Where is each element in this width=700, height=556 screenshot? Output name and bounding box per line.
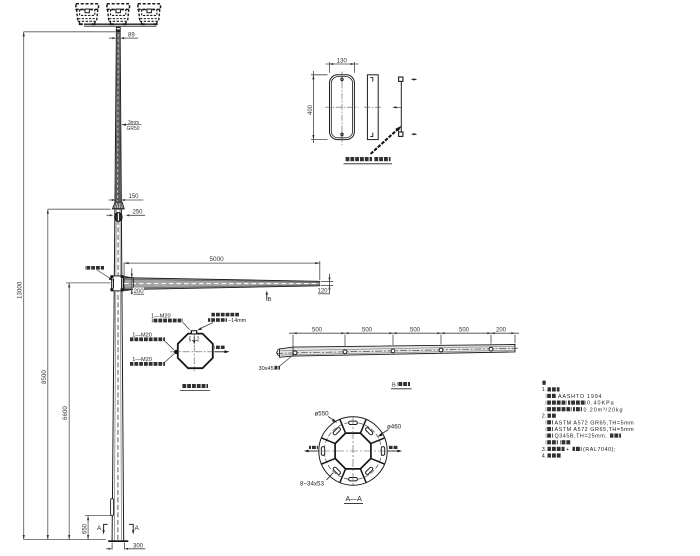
svg-text:130: 130 xyxy=(337,58,348,64)
svg-text:2.: 2. xyxy=(542,414,548,420)
svg-text:300: 300 xyxy=(133,544,144,550)
svg-text:A: A xyxy=(97,525,102,532)
svg-text:30x45: 30x45 xyxy=(259,366,274,372)
svg-text:500: 500 xyxy=(410,327,421,333)
svg-text:6600: 6600 xyxy=(62,406,69,420)
svg-text:AASHTO 1994: AASHTO 1994 xyxy=(558,394,602,400)
svg-text:ø460: ø460 xyxy=(387,424,402,431)
svg-text:+: + xyxy=(566,447,570,453)
svg-text:4.: 4. xyxy=(542,454,548,460)
svg-text:150: 150 xyxy=(129,194,140,200)
svg-text:1.: 1. xyxy=(542,387,548,393)
svg-text:8−34x53: 8−34x53 xyxy=(300,481,324,488)
svg-text:0.40KPa: 0.40KPa xyxy=(587,401,615,407)
svg-text:A: A xyxy=(135,525,140,532)
svg-text:0.20m³/20kg: 0.20m³/20kg xyxy=(584,407,624,413)
svg-text:500: 500 xyxy=(362,327,373,333)
svg-text:B: B xyxy=(392,383,396,389)
svg-text:(RAL7040);: (RAL7040); xyxy=(583,447,616,453)
svg-text:−14mm: −14mm xyxy=(228,318,247,324)
svg-text:ø550: ø550 xyxy=(315,410,330,417)
svg-text:500: 500 xyxy=(459,327,470,333)
svg-text:200: 200 xyxy=(496,327,507,333)
svg-text:89: 89 xyxy=(128,33,135,39)
svg-text:5000: 5000 xyxy=(210,256,225,263)
svg-text:GR50: GR50 xyxy=(127,126,140,132)
svg-text:B: B xyxy=(268,297,272,303)
svg-text:400: 400 xyxy=(308,104,314,115)
svg-text:13000: 13000 xyxy=(17,281,24,299)
svg-text:8500: 8500 xyxy=(41,370,48,384)
svg-text:500: 500 xyxy=(312,327,323,333)
svg-text:650: 650 xyxy=(82,523,88,534)
svg-text:120: 120 xyxy=(318,288,329,294)
svg-text:A—A: A—A xyxy=(346,496,363,503)
svg-text:250: 250 xyxy=(133,210,144,216)
svg-text:Q345B,TH=25mm,: Q345B,TH=25mm, xyxy=(555,434,608,440)
svg-text:200: 200 xyxy=(134,289,145,295)
svg-text:ASTM A572 GR65,TH=5mm: ASTM A572 GR65,TH=5mm xyxy=(555,420,635,426)
svg-text:ASTM A572 GR65,TH=5mm: ASTM A572 GR65,TH=5mm xyxy=(555,427,635,433)
svg-text:3.: 3. xyxy=(542,447,548,453)
